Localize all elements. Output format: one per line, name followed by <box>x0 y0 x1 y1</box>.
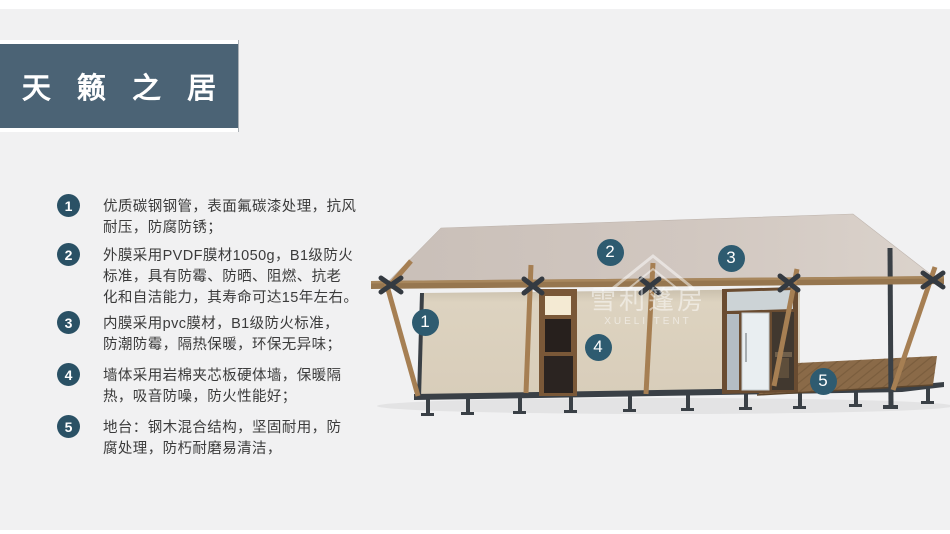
feature-text: 优质碳钢钢管，表面氟碳漆处理，抗风耐压，防腐防锈； <box>103 197 367 239</box>
bottom-white-band <box>0 530 950 534</box>
feature-item-3: 3 内膜采用pvc膜材，B1级防火标准，防潮防霉，隔热保暖，环保无异味； <box>57 314 367 356</box>
callout-badge-4: 4 <box>585 334 612 361</box>
callout-badge-5: 5 <box>810 368 837 395</box>
feature-text: 内膜采用pvc膜材，B1级防火标准，防潮防霉，隔热保暖，环保无异味； <box>103 314 367 356</box>
feature-number-badge: 2 <box>57 243 80 266</box>
feature-text: 地台：钢木混合结构，坚固耐用，防腐处理，防朽耐磨易清洁， <box>103 418 367 460</box>
tent-rendering: 雪利篷房 XUELI TENT <box>365 195 950 435</box>
callout-badge-2: 2 <box>597 239 624 266</box>
page-title: 天 籁 之 居 <box>13 65 225 107</box>
feature-item-4: 4 墙体采用岩棉夹芯板硬体墙，保暖隔热，吸音防噪，防火性能好； <box>57 366 367 408</box>
title-banner: 天 籁 之 居 <box>0 40 238 132</box>
ground-shadow <box>377 398 950 414</box>
feature-item-1: 1 优质碳钢钢管，表面氟碳漆处理，抗风耐压，防腐防锈； <box>57 197 367 239</box>
callout-badge-1: 1 <box>412 309 439 336</box>
feature-number-badge: 1 <box>57 194 80 217</box>
wood-door <box>539 289 577 396</box>
feature-number-badge: 5 <box>57 415 80 438</box>
watermark-cn-text: 雪利篷房 <box>590 285 706 315</box>
glass-door-section <box>722 287 798 394</box>
tent-illustration: 雪利篷房 XUELI TENT <box>365 195 950 435</box>
callout-badge-3: 3 <box>718 245 745 272</box>
feature-item-5: 5 地台：钢木混合结构，坚固耐用，防腐处理，防朽耐磨易清洁， <box>57 418 367 460</box>
feature-number-badge: 4 <box>57 363 80 386</box>
watermark-en-text: XUELI TENT <box>604 316 692 327</box>
top-white-band <box>0 0 950 9</box>
feature-text: 外膜采用PVDF膜材1050g，B1级防火标准，具有防霉、防晒、阻燃、抗老化和自… <box>103 246 367 309</box>
feature-number-badge: 3 <box>57 311 80 334</box>
feature-text: 墙体采用岩棉夹芯板硬体墙，保暖隔热，吸音防噪，防火性能好； <box>103 366 367 408</box>
feature-item-2: 2 外膜采用PVDF膜材1050g，B1级防火标准，具有防霉、防晒、阻燃、抗老化… <box>57 246 367 309</box>
